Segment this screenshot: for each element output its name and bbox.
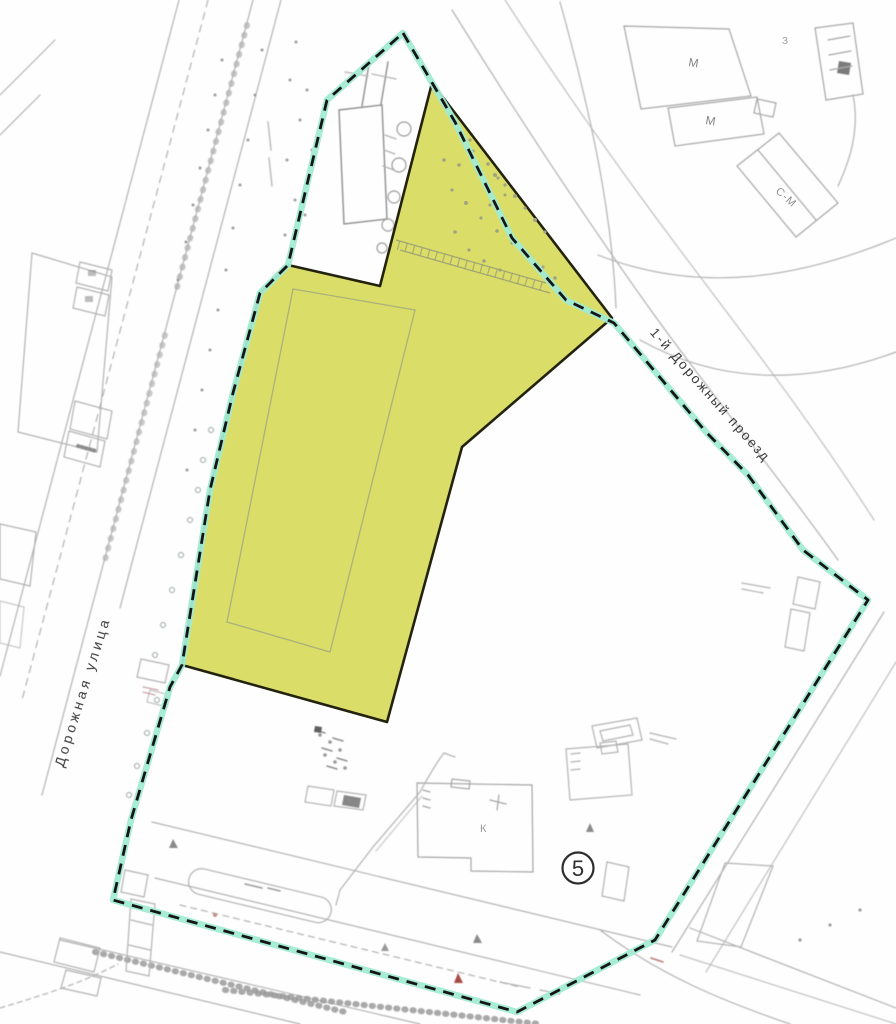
building-label-z: З bbox=[782, 36, 788, 47]
site-number-marker: 5 bbox=[563, 853, 594, 884]
building-label-k: К bbox=[480, 823, 487, 835]
site-plan-map: Дорожная улица 1-й Дорожный проезд М М З… bbox=[0, 0, 896, 1024]
site-number-text: 5 bbox=[572, 856, 584, 881]
map-canvas: Дорожная улица 1-й Дорожный проезд М М З… bbox=[0, 0, 896, 1024]
